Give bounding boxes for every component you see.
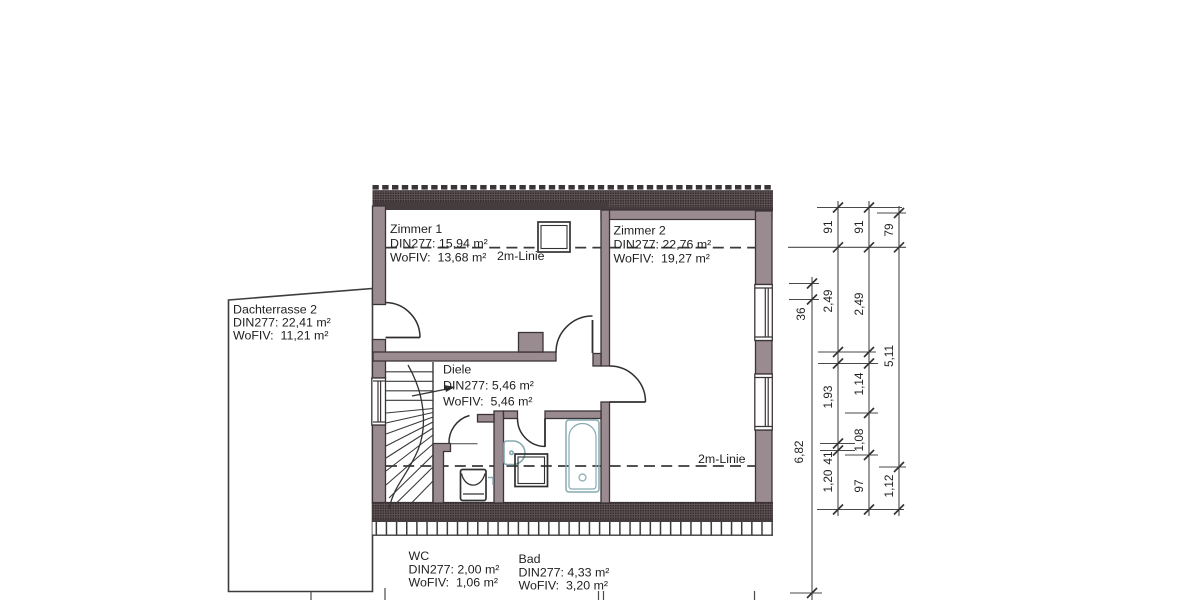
svg-text:Zimmer 2: Zimmer 2 bbox=[614, 224, 666, 238]
svg-text:Diele: Diele bbox=[443, 363, 471, 377]
svg-text:DIN277: 4,33 m²: DIN277: 4,33 m² bbox=[519, 566, 610, 580]
svg-text:Bad: Bad bbox=[519, 552, 541, 566]
svg-text:DIN277: 15,94 m²: DIN277: 15,94 m² bbox=[390, 237, 488, 251]
svg-text:5,11: 5,11 bbox=[882, 345, 896, 367]
svg-text:1,12: 1,12 bbox=[882, 475, 896, 498]
svg-text:79: 79 bbox=[882, 223, 896, 236]
svg-text:WoFIV: 3,20 m²: WoFIV: 3,20 m² bbox=[519, 579, 609, 593]
svg-text:2m-Linie: 2m-Linie bbox=[698, 452, 746, 466]
svg-text:WC: WC bbox=[409, 549, 430, 563]
svg-text:Dachterrasse 2: Dachterrasse 2 bbox=[233, 303, 317, 317]
svg-text:DIN277: 5,46 m²: DIN277: 5,46 m² bbox=[443, 379, 534, 393]
svg-text:41: 41 bbox=[821, 451, 835, 464]
svg-text:97: 97 bbox=[852, 479, 866, 492]
svg-text:6,82: 6,82 bbox=[792, 441, 806, 464]
svg-text:2m-Linie: 2m-Linie bbox=[497, 249, 545, 263]
svg-text:1,14: 1,14 bbox=[852, 372, 866, 395]
svg-text:1,08: 1,08 bbox=[852, 428, 866, 451]
svg-text:DIN277: 22,76 m²: DIN277: 22,76 m² bbox=[614, 238, 712, 252]
svg-text:DIN277: 22,41 m²: DIN277: 22,41 m² bbox=[233, 316, 331, 330]
svg-text:2,49: 2,49 bbox=[821, 290, 835, 313]
svg-text:WoFIV: 5,46 m²: WoFIV: 5,46 m² bbox=[443, 395, 533, 409]
svg-text:2,49: 2,49 bbox=[852, 293, 866, 316]
svg-text:Zimmer 1: Zimmer 1 bbox=[390, 222, 442, 236]
svg-text:1,20: 1,20 bbox=[821, 469, 835, 492]
svg-text:DIN277: 2,00 m²: DIN277: 2,00 m² bbox=[409, 563, 500, 577]
svg-text:WoFIV: 19,27 m²: WoFIV: 19,27 m² bbox=[614, 252, 710, 266]
svg-text:36: 36 bbox=[794, 307, 808, 321]
svg-text:WoFIV: 11,21 m²: WoFIV: 11,21 m² bbox=[233, 329, 328, 343]
svg-text:WoFIV: 1,06 m²: WoFIV: 1,06 m² bbox=[409, 576, 499, 590]
svg-text:91: 91 bbox=[821, 220, 835, 233]
svg-text:91: 91 bbox=[852, 220, 866, 233]
svg-text:WoFIV: 13,68 m²: WoFIV: 13,68 m² bbox=[390, 251, 486, 265]
svg-text:1,93: 1,93 bbox=[821, 385, 835, 408]
